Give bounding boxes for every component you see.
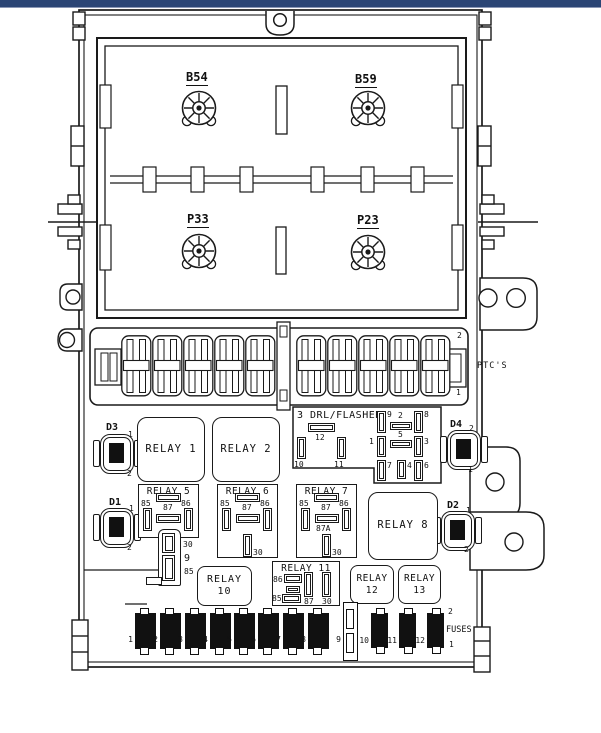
mount-hole bbox=[507, 289, 526, 308]
drl-pin-11: 11 bbox=[334, 461, 344, 470]
ptc-label: PTC'S bbox=[477, 362, 508, 371]
fuse-number-8: 8 bbox=[297, 636, 306, 645]
relay5-stack-pin-85: 85 bbox=[184, 568, 194, 577]
drl-pin-7: 7 bbox=[387, 462, 392, 471]
fuse-number-9: 9 bbox=[332, 636, 341, 645]
diode-d1-pin-bottom: 2 bbox=[127, 544, 132, 553]
drl-pin-1: 1 bbox=[369, 438, 374, 447]
drl-terminal-7 bbox=[377, 460, 386, 481]
relay5-terminal-87a bbox=[156, 493, 181, 502]
relay5-stack-foot bbox=[146, 577, 162, 585]
fuse-number-11: 11 bbox=[384, 637, 397, 646]
relay7-terminal-87 bbox=[314, 493, 339, 502]
mount-hole bbox=[60, 333, 75, 348]
diode-d1-label: D1 bbox=[109, 497, 121, 508]
relay6-terminal-85 bbox=[222, 508, 231, 531]
relay11-pin-85: 85 bbox=[272, 595, 282, 604]
fuse-number-2: 2 bbox=[149, 636, 158, 645]
fuse-slot-9 bbox=[343, 602, 358, 661]
mount-hole bbox=[505, 533, 523, 551]
fuse-8 bbox=[308, 613, 329, 649]
fuse-number-1: 1 bbox=[124, 636, 133, 645]
diode-d4-pin-bottom: 1 bbox=[468, 466, 473, 475]
diode-d4 bbox=[447, 430, 481, 470]
diode-d3-pin-bottom: 2 bbox=[127, 470, 132, 479]
drl-terminal-4 bbox=[397, 460, 406, 479]
drl-pin-5: 5 bbox=[398, 431, 403, 440]
drl-pin-4: 4 bbox=[407, 462, 412, 471]
drl-pin-3: 3 bbox=[424, 438, 429, 447]
relay6-pin-87: 87 bbox=[242, 504, 252, 513]
relay11-pin-87: 87 bbox=[304, 598, 314, 607]
relay7-terminal-85 bbox=[301, 508, 310, 531]
drl-pin-12: 12 bbox=[315, 434, 325, 443]
drl-terminal-8 bbox=[414, 411, 423, 433]
relay5-terminal-87b bbox=[156, 514, 181, 523]
fuse-number-7: 7 bbox=[272, 636, 281, 645]
relay11-pin-86: 86 bbox=[273, 576, 283, 585]
drl-pin-6: 6 bbox=[424, 462, 429, 471]
bolt-label-b54: B54 bbox=[186, 71, 208, 86]
relay11-terminal-85 bbox=[282, 594, 301, 603]
fuses-pin-2: 2 bbox=[448, 608, 453, 617]
ptc-pin-2: 2 bbox=[457, 332, 462, 341]
bolt-p23 bbox=[351, 236, 384, 270]
diode-d2 bbox=[441, 511, 475, 551]
diode-d2-pin-bottom: 2 bbox=[464, 546, 469, 555]
relay11-terminal-mid bbox=[286, 586, 300, 593]
fuse-number-3: 3 bbox=[174, 636, 183, 645]
tab-hole bbox=[274, 14, 287, 27]
relay5-pin-87: 87 bbox=[163, 504, 173, 513]
fuse-number-12: 12 bbox=[412, 637, 425, 646]
diode-d4-label: D4 bbox=[450, 419, 462, 430]
diode-d1 bbox=[100, 508, 134, 548]
bolt-b54 bbox=[182, 92, 215, 126]
relay11-terminal-30 bbox=[322, 572, 331, 597]
diode-d2-label: D2 bbox=[447, 500, 459, 511]
fuses-pin-1: 1 bbox=[449, 641, 454, 650]
drl-title: 3 DRL/FLASHER bbox=[297, 410, 382, 421]
bolt-b59 bbox=[351, 92, 384, 126]
fuse-number-10: 10 bbox=[356, 637, 369, 646]
relay6-terminal-87b bbox=[236, 514, 260, 523]
diode-d3-label: D3 bbox=[106, 422, 118, 433]
relay11-pin-30: 30 bbox=[322, 598, 332, 607]
relay7-terminal-87a bbox=[315, 514, 339, 523]
relay7-terminal-30 bbox=[322, 534, 331, 557]
drl-terminal-10 bbox=[297, 437, 306, 459]
fuse-12 bbox=[427, 613, 444, 648]
bolt-label-p33: P33 bbox=[187, 213, 209, 228]
relay7-pin-87a: 87A bbox=[316, 525, 330, 534]
drl-pin-2: 2 bbox=[398, 412, 403, 421]
relay11-terminal-86 bbox=[284, 574, 302, 583]
relay11-terminal-87 bbox=[304, 572, 313, 597]
relay7-pin-87: 87 bbox=[321, 504, 331, 513]
drl-pin-8: 8 bbox=[424, 411, 429, 420]
drl-pin-10: 10 bbox=[294, 461, 304, 470]
relay5-stack-pin-9: 9 bbox=[184, 553, 190, 564]
relay-10: RELAY 10 bbox=[197, 566, 252, 606]
relay6-pin-30: 30 bbox=[253, 549, 263, 558]
relay5-terminal-85 bbox=[143, 508, 152, 531]
relay-1: RELAY 1 bbox=[137, 417, 205, 482]
fuses-label: FUSES bbox=[446, 626, 472, 635]
fuse-number-4: 4 bbox=[199, 636, 208, 645]
fuse-relay-box-diagram: B54 B59 P33 P23 2 1 PTC'S 3 DRL/FLASHER … bbox=[0, 0, 601, 733]
mount-hole bbox=[479, 289, 497, 307]
relay7-pin-30: 30 bbox=[332, 549, 342, 558]
drl-terminal-1 bbox=[377, 436, 386, 457]
mount-hole bbox=[66, 290, 80, 304]
drl-terminal-9 bbox=[377, 411, 386, 433]
relay5-terminal-86 bbox=[184, 508, 193, 531]
relay7-terminal-86 bbox=[342, 508, 351, 531]
drl-terminal-6 bbox=[414, 460, 423, 481]
relay-12: RELAY12 bbox=[350, 565, 394, 604]
bolt-label-b59: B59 bbox=[355, 73, 377, 88]
relay5-stack-pin-30: 30 bbox=[183, 541, 193, 550]
relay6-terminal-87a bbox=[235, 493, 260, 502]
ptc-pin-1: 1 bbox=[456, 389, 461, 398]
diode-d3 bbox=[100, 434, 134, 474]
drl-terminal-5 bbox=[390, 440, 412, 448]
drl-pin-9: 9 bbox=[387, 411, 392, 420]
relay-2: RELAY 2 bbox=[212, 417, 280, 482]
relay6-terminal-86 bbox=[263, 508, 272, 531]
relay-8: RELAY 8 bbox=[368, 492, 438, 560]
drl-terminal-3 bbox=[414, 436, 423, 457]
bolt-p33 bbox=[182, 235, 215, 269]
fuse-number-6: 6 bbox=[247, 636, 256, 645]
fuse-number-5: 5 bbox=[223, 636, 232, 645]
relay6-terminal-30 bbox=[243, 534, 252, 557]
drl-terminal-12 bbox=[308, 423, 335, 432]
mount-hole bbox=[486, 473, 504, 491]
relay-13: RELAY13 bbox=[398, 565, 441, 604]
drl-terminal-11 bbox=[337, 437, 346, 459]
bolt-label-p23: P23 bbox=[357, 214, 379, 229]
drl-terminal-2 bbox=[390, 422, 412, 430]
